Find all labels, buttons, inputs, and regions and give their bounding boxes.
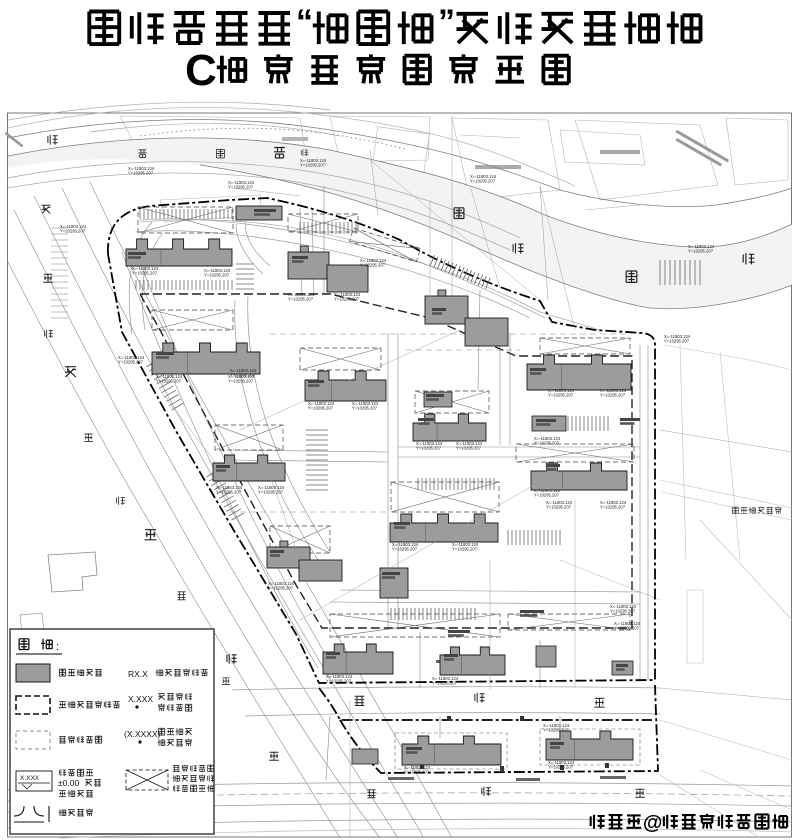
svg-text:Y=10295.207: Y=10295.207 — [600, 505, 626, 510]
svg-text:Y=10295.207: Y=10295.207 — [470, 179, 496, 184]
svg-text:(X.XXXX): (X.XXXX) — [124, 729, 161, 739]
svg-text:Y=10295.207: Y=10295.207 — [334, 297, 360, 302]
svg-text:Y=10295.207: Y=10295.207 — [404, 770, 430, 775]
svg-text:Y=10295.207: Y=10295.207 — [60, 229, 86, 234]
svg-text:@: @ — [643, 812, 663, 834]
svg-text:Y=10295.207: Y=10295.207 — [352, 406, 378, 411]
svg-text:X.XXX: X.XXX — [20, 775, 40, 782]
svg-text:±0.00: ±0.00 — [58, 778, 79, 788]
svg-text:Y=10295.207: Y=10295.207 — [228, 379, 254, 384]
svg-text:Y=10295.207: Y=10295.207 — [300, 163, 326, 168]
svg-text:Y=10295.207: Y=10295.207 — [128, 171, 154, 176]
svg-text:Y=10295.207: Y=10295.207 — [452, 547, 478, 552]
svg-text:Y=10295.207: Y=10295.207 — [230, 373, 256, 378]
svg-text:Y=10295.207: Y=10295.207 — [548, 765, 574, 770]
svg-text::: : — [56, 641, 59, 653]
svg-text:Y=10295.207: Y=10295.207 — [688, 249, 714, 254]
svg-text:Y=10295.207: Y=10295.207 — [416, 446, 442, 451]
svg-text:C: C — [185, 46, 217, 95]
svg-text:Y=10295.207: Y=10295.207 — [456, 446, 482, 451]
svg-text:”: ” — [438, 3, 455, 41]
svg-text:Y=10295.207: Y=10295.207 — [548, 393, 574, 398]
svg-text:Y=10295.207: Y=10295.207 — [360, 263, 386, 268]
svg-text:Y=10295.207: Y=10295.207 — [118, 360, 144, 365]
svg-text:Y=10295.207: Y=10295.207 — [156, 379, 182, 384]
svg-text:Y=10295.207: Y=10295.207 — [258, 490, 284, 495]
svg-text:Y=10295.207: Y=10295.207 — [392, 547, 418, 552]
svg-text:Y=10295.207: Y=10295.207 — [326, 679, 352, 684]
svg-text:Y=10295.207: Y=10295.207 — [664, 339, 690, 344]
svg-text:Y=10295.207: Y=10295.207 — [432, 681, 458, 686]
svg-text:Y=10295.207: Y=10295.207 — [132, 271, 158, 276]
svg-text:“: “ — [296, 3, 313, 41]
svg-text:Y=10295.207: Y=10295.207 — [268, 586, 294, 591]
svg-text:Y=10295.207: Y=10295.207 — [534, 441, 560, 446]
svg-text:Y=10295.207: Y=10295.207 — [288, 297, 314, 302]
svg-text:Y=10295.207: Y=10295.207 — [614, 626, 640, 631]
svg-text:X.XXX: X.XXX — [128, 694, 153, 704]
svg-text:Y=10295.207: Y=10295.207 — [204, 273, 230, 278]
svg-text:Y=10295.207: Y=10295.207 — [546, 505, 572, 510]
svg-text:Y=10295.207: Y=10295.207 — [216, 490, 242, 495]
svg-text:Y=10295.207: Y=10295.207 — [534, 493, 560, 498]
svg-text:Y=10295.207: Y=10295.207 — [600, 393, 626, 398]
svg-text:Y=10295.207: Y=10295.207 — [308, 406, 334, 411]
svg-text:RX.X: RX.X — [128, 669, 148, 679]
